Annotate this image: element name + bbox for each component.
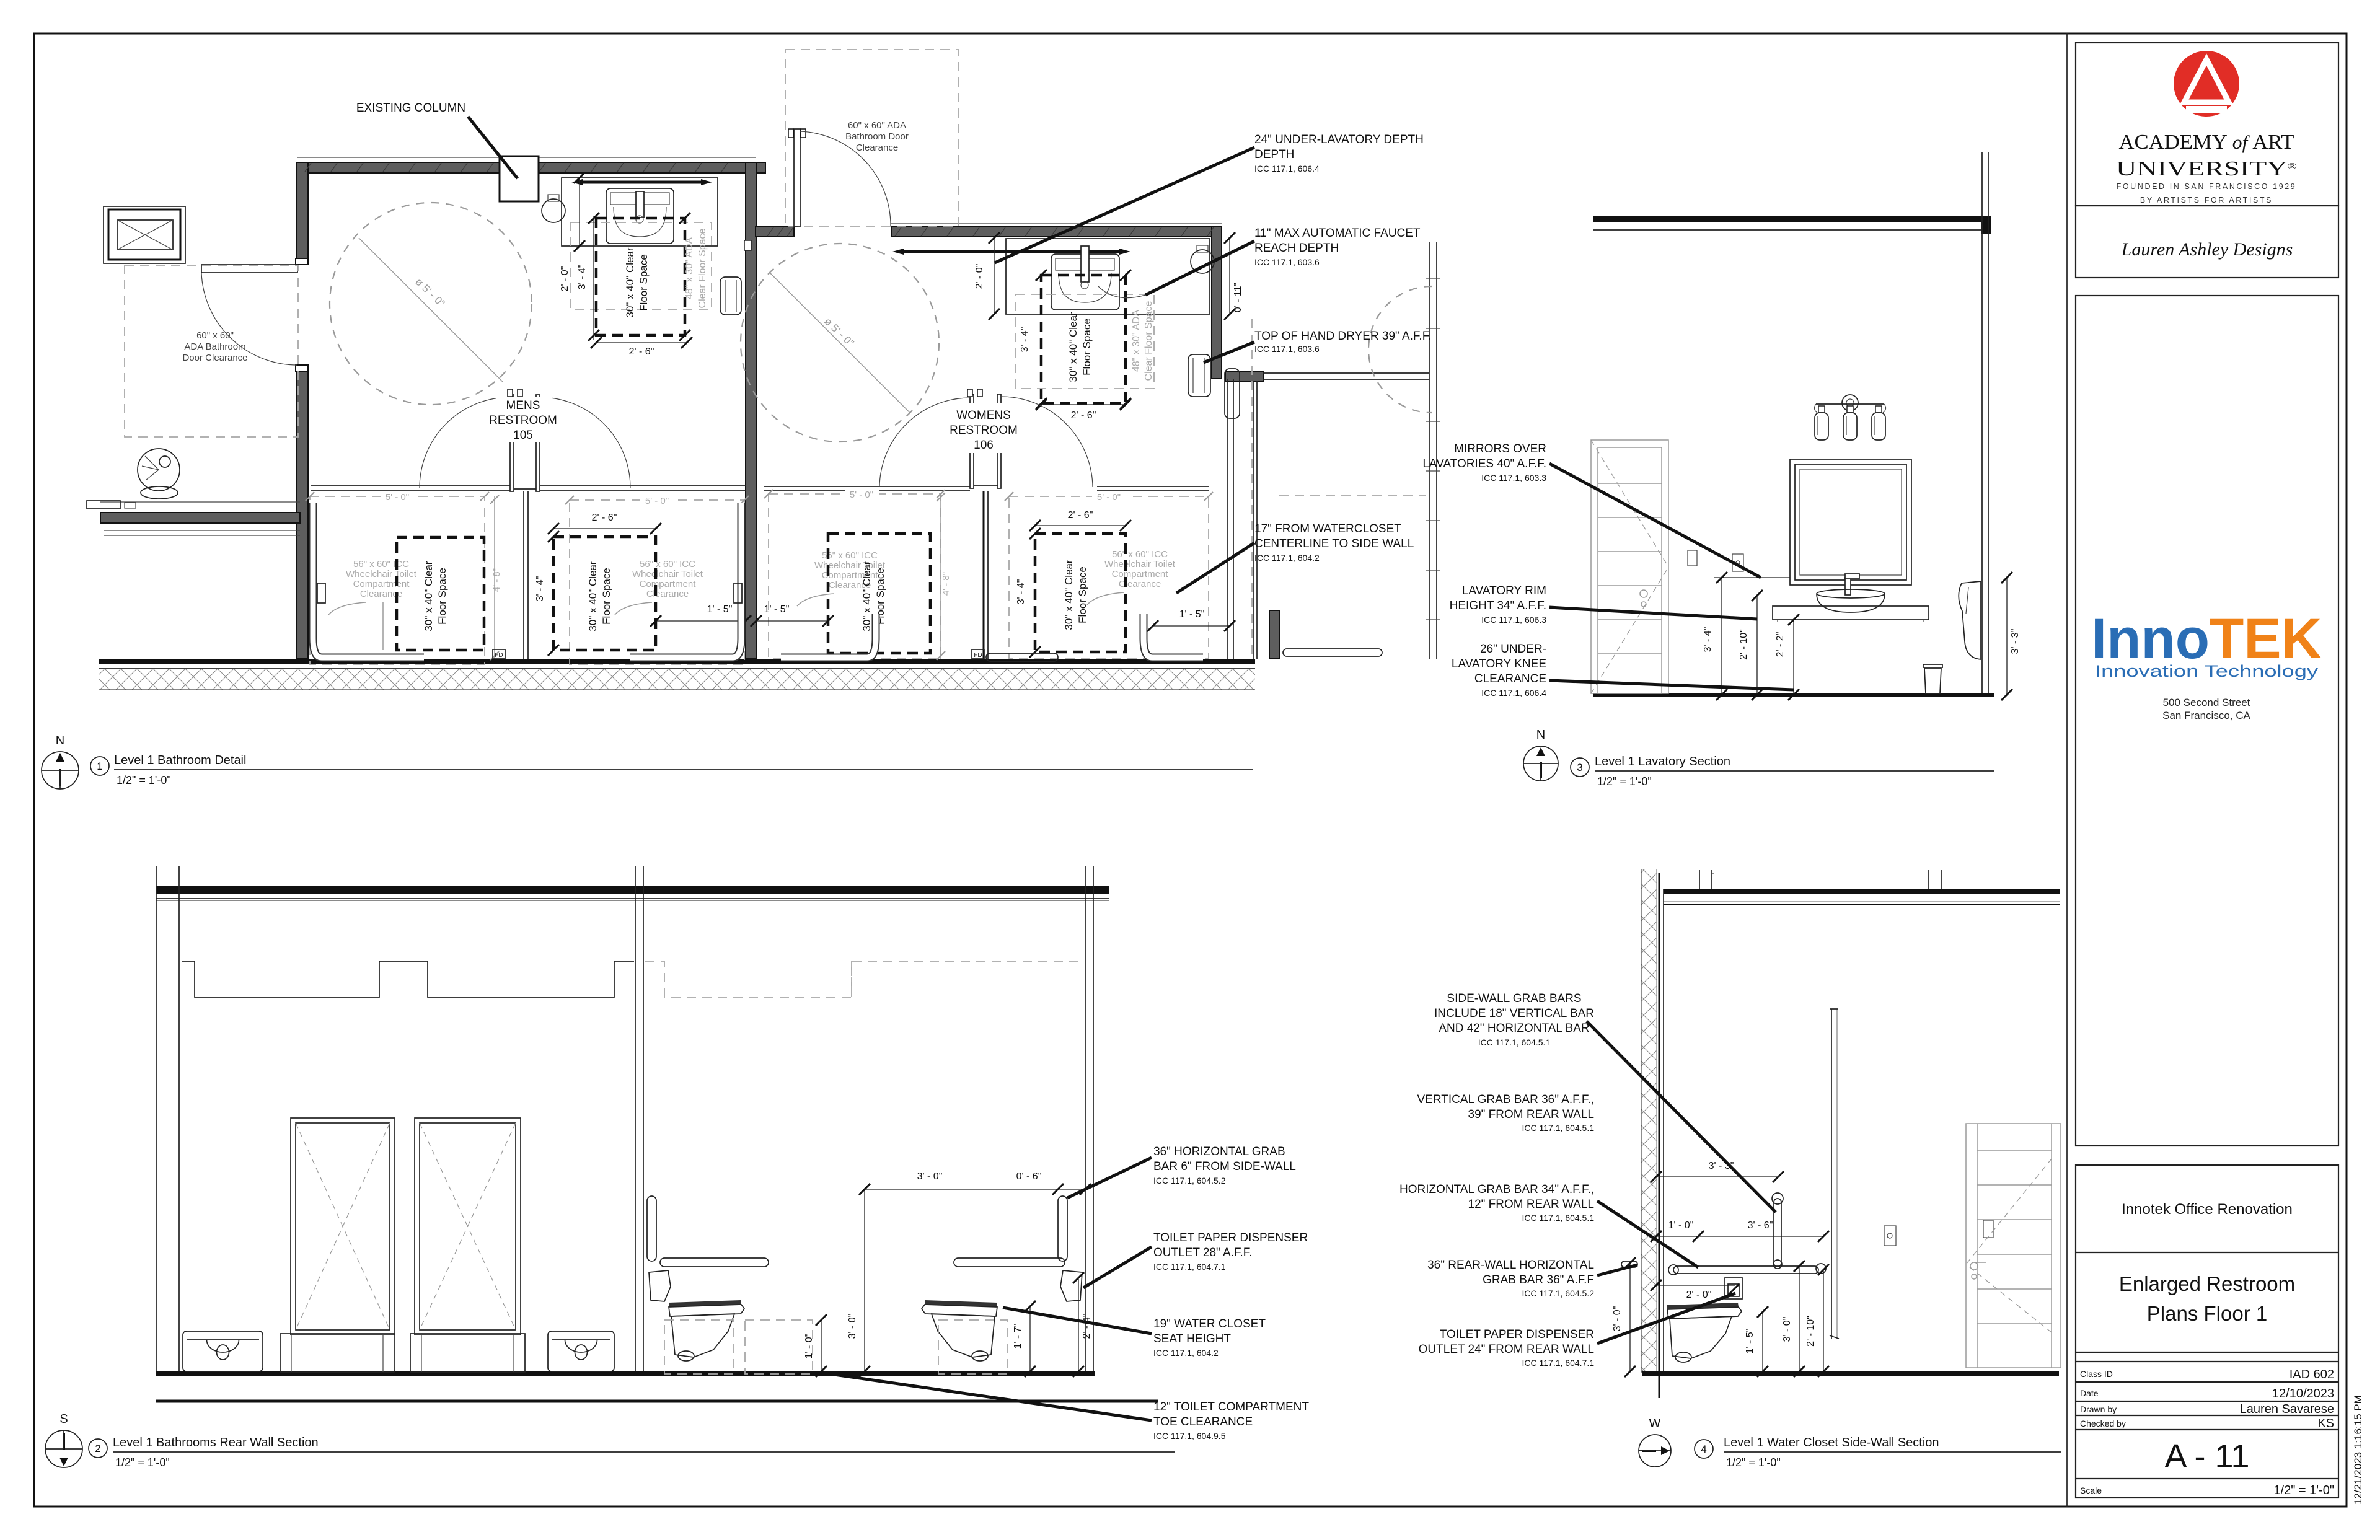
svg-text:BAR 6" FROM SIDE-WALL: BAR 6" FROM SIDE-WALL (1153, 1160, 1296, 1173)
svg-text:1' - 5": 1' - 5" (707, 604, 733, 615)
svg-text:OUTLET 24" FROM REAR WALL: OUTLET 24" FROM REAR WALL (1419, 1343, 1594, 1356)
svg-text:ICC 117.1, 604.5.1: ICC 117.1, 604.5.1 (1522, 1213, 1595, 1223)
svg-text:2' - 6": 2' - 6" (629, 346, 654, 357)
svg-text:2' - 0": 2' - 0" (974, 264, 985, 289)
svg-text:Level 1 Lavatory Section: Level 1 Lavatory Section (1595, 755, 1730, 768)
svg-text:Floor Space: Floor Space (436, 568, 448, 625)
svg-text:3' - 0": 3' - 0" (917, 1171, 943, 1182)
svg-text:Drawn by: Drawn by (2080, 1404, 2117, 1414)
svg-text:A - 11: A - 11 (2164, 1438, 2249, 1475)
svg-text:N: N (56, 734, 64, 747)
svg-text:REACH DEPTH: REACH DEPTH (1254, 242, 1339, 255)
svg-text:WOMENS: WOMENS (956, 409, 1011, 422)
svg-text:2: 2 (95, 1443, 100, 1454)
svg-text:Wheelchair Toilet: Wheelchair Toilet (1104, 559, 1176, 570)
svg-text:DEPTH: DEPTH (1254, 148, 1294, 161)
svg-text:SIDE-WALL GRAB BARS: SIDE-WALL GRAB BARS (1447, 992, 1581, 1005)
svg-text:3' - 4": 3' - 4" (1016, 579, 1026, 605)
svg-text:Plans Floor 1: Plans Floor 1 (2147, 1302, 2267, 1325)
svg-text:ICC 117.1, 604.2: ICC 117.1, 604.2 (1254, 553, 1320, 563)
svg-text:1: 1 (97, 760, 102, 772)
svg-text:3' - 0": 3' - 0" (1612, 1306, 1623, 1332)
svg-text:36" HORIZONTAL GRAB: 36" HORIZONTAL GRAB (1153, 1145, 1285, 1158)
svg-text:12/10/2023: 12/10/2023 (2272, 1387, 2334, 1401)
svg-text:5' - 0": 5' - 0" (1097, 492, 1121, 503)
svg-text:1/2" = 1'-0": 1/2" = 1'-0" (115, 1456, 170, 1469)
svg-text:Level 1 Water Closet Side-Wall: Level 1 Water Closet Side-Wall Section (1724, 1436, 1939, 1450)
svg-text:36" REAR-WALL HORIZONTAL: 36" REAR-WALL HORIZONTAL (1427, 1259, 1594, 1272)
svg-text:BY ARTISTS FOR ARTISTS: BY ARTISTS FOR ARTISTS (2140, 196, 2273, 205)
svg-text:1/2" = 1'-0": 1/2" = 1'-0" (2273, 1484, 2334, 1497)
svg-text:FD: FD (495, 652, 503, 659)
svg-text:3' - 6": 3' - 6" (1748, 1220, 1773, 1231)
svg-text:Clearance: Clearance (856, 143, 898, 153)
svg-text:Clearance: Clearance (646, 589, 689, 599)
svg-text:2' - 2": 2' - 2" (1775, 632, 1786, 658)
svg-text:Clear Floor Space: Clear Floor Space (697, 228, 708, 308)
svg-text:30" x 40" Clear: 30" x 40" Clear (1063, 560, 1075, 630)
svg-text:Compartment: Compartment (353, 579, 410, 589)
svg-text:12" FROM REAR WALL: 12" FROM REAR WALL (1468, 1198, 1594, 1211)
svg-text:ICC 117.1, 604.5.1: ICC 117.1, 604.5.1 (1522, 1123, 1595, 1133)
svg-text:RESTROOM: RESTROOM (950, 424, 1018, 437)
svg-text:1' - 0": 1' - 0" (1668, 1220, 1694, 1231)
svg-text:48" x 30" ADA: 48" x 30" ADA (1131, 310, 1142, 372)
svg-text:105: 105 (513, 429, 533, 442)
svg-text:LAVATORY KNEE: LAVATORY KNEE (1452, 658, 1546, 671)
svg-text:ICC 117.1, 604.7.1: ICC 117.1, 604.7.1 (1522, 1358, 1595, 1368)
svg-text:106: 106 (974, 439, 994, 452)
svg-text:3' - 3": 3' - 3" (2010, 629, 2021, 654)
svg-text:CENTERLINE TO SIDE WALL: CENTERLINE TO SIDE WALL (1254, 537, 1414, 550)
svg-text:56" x 60" ICC: 56" x 60" ICC (640, 559, 695, 570)
svg-text:Class ID: Class ID (2080, 1369, 2113, 1379)
svg-text:INCLUDE 18" VERTICAL BAR: INCLUDE 18" VERTICAL BAR (1434, 1007, 1594, 1020)
svg-text:3' - 4": 3' - 4" (577, 265, 588, 290)
svg-text:3' - 0": 3' - 0" (847, 1314, 858, 1339)
svg-text:ACADEMY of ART: ACADEMY of ART (2119, 131, 2294, 154)
svg-text:1/2" = 1'-0": 1/2" = 1'-0" (1726, 1456, 1781, 1469)
svg-text:ICC 117.1, 604.5.2: ICC 117.1, 604.5.2 (1153, 1176, 1226, 1186)
svg-text:Checked by: Checked by (2080, 1419, 2126, 1428)
svg-text:4: 4 (1701, 1443, 1706, 1455)
svg-text:RESTROOM: RESTROOM (489, 414, 557, 427)
svg-text:12" TOILET COMPARTMENT: 12" TOILET COMPARTMENT (1153, 1401, 1309, 1414)
svg-text:HEIGHT 34" A.F.F.: HEIGHT 34" A.F.F. (1450, 599, 1546, 612)
svg-text:Level 1 Bathrooms Rear Wall Se: Level 1 Bathrooms Rear Wall Section (113, 1436, 319, 1450)
svg-text:1/2" = 1'-0": 1/2" = 1'-0" (1597, 775, 1652, 788)
svg-text:ADA Bathroom: ADA Bathroom (184, 341, 245, 352)
svg-text:3' - 4": 3' - 4" (535, 576, 545, 602)
svg-text:11" MAX AUTOMATIC FAUCET: 11" MAX AUTOMATIC FAUCET (1254, 227, 1421, 240)
svg-text:OUTLET 28" A.F.F.: OUTLET 28" A.F.F. (1153, 1246, 1253, 1259)
svg-text:Floor Space: Floor Space (601, 568, 612, 625)
svg-text:ICC 117.1, 603.6: ICC 117.1, 603.6 (1254, 344, 1320, 354)
svg-text:Compartment: Compartment (640, 579, 697, 589)
svg-text:HORIZONTAL GRAB BAR 34" A.F.F.: HORIZONTAL GRAB BAR 34" A.F.F., (1399, 1183, 1594, 1196)
svg-text:3: 3 (1577, 762, 1582, 773)
svg-text:ICC 117.1, 606.4: ICC 117.1, 606.4 (1481, 688, 1546, 698)
svg-text:GRAB BAR 36" A.F.F: GRAB BAR 36" A.F.F (1483, 1274, 1594, 1287)
svg-text:4' - 8": 4' - 8" (491, 568, 502, 592)
svg-text:InnoTEK: InnoTEK (2091, 607, 2322, 671)
svg-text:ICC 117.1, 604.5.1: ICC 117.1, 604.5.1 (1478, 1037, 1551, 1047)
svg-text:30" x 40" Clear: 30" x 40" Clear (1067, 312, 1079, 382)
svg-text:TOILET PAPER DISPENSER: TOILET PAPER DISPENSER (1440, 1328, 1594, 1341)
svg-text:ICC 117.1, 604.5.2: ICC 117.1, 604.5.2 (1522, 1288, 1595, 1298)
svg-text:2' - 6": 2' - 6" (592, 513, 617, 523)
svg-text:LAVATORIES 40" A.F.F.: LAVATORIES 40" A.F.F. (1422, 457, 1546, 470)
svg-text:ICC 117.1, 604.7.1: ICC 117.1, 604.7.1 (1153, 1262, 1226, 1272)
svg-text:56" x 60" ICC: 56" x 60" ICC (822, 550, 878, 561)
svg-text:1' - 5": 1' - 5" (1179, 609, 1205, 620)
svg-text:VERTICAL GRAB BAR 36" A.F.F.,: VERTICAL GRAB BAR 36" A.F.F., (1417, 1093, 1594, 1106)
svg-text:FOUNDED IN SAN FRANCISCO 1929: FOUNDED IN SAN FRANCISCO 1929 (2117, 182, 2297, 191)
svg-text:5' - 0": 5' - 0" (645, 496, 669, 506)
svg-text:30" x 40" Clear: 30" x 40" Clear (423, 561, 434, 631)
svg-text:Floor Space: Floor Space (1077, 566, 1088, 623)
svg-text:ICC 117.1, 603.3: ICC 117.1, 603.3 (1481, 473, 1546, 483)
svg-text:S: S (59, 1412, 68, 1426)
svg-text:1/2" = 1'-0": 1/2" = 1'-0" (117, 774, 171, 786)
svg-text:1' - 0": 1' - 0" (804, 1334, 814, 1359)
svg-text:N: N (1536, 728, 1545, 742)
svg-text:1' - 5": 1' - 5" (1745, 1329, 1755, 1354)
svg-text:30" x 40" Clear: 30" x 40" Clear (624, 247, 636, 318)
svg-text:56" x 60" ICC: 56" x 60" ICC (1112, 549, 1168, 560)
svg-text:1' - 7": 1' - 7" (1013, 1324, 1023, 1349)
svg-text:2' - 6": 2' - 6" (1071, 410, 1096, 421)
svg-text:56" x 60" ICC: 56" x 60" ICC (353, 559, 409, 570)
svg-text:Floor Space: Floor Space (1081, 319, 1093, 376)
svg-text:Date: Date (2080, 1388, 2099, 1398)
svg-text:30" x 40" Clear: 30" x 40" Clear (861, 561, 873, 631)
svg-text:17" FROM WATERCLOSET: 17" FROM WATERCLOSET (1254, 522, 1401, 535)
svg-text:30" x 40" Clear: 30" x 40" Clear (587, 561, 599, 631)
svg-text:Lauren Savarese: Lauren Savarese (2240, 1402, 2334, 1416)
svg-text:2' - 6": 2' - 6" (1068, 510, 1093, 521)
svg-text:TOE CLEARANCE: TOE CLEARANCE (1153, 1415, 1253, 1428)
svg-text:Wheelchair Toilet: Wheelchair Toilet (346, 569, 417, 579)
svg-text:12/21/2023 1:16:15 PM: 12/21/2023 1:16:15 PM (2352, 1395, 2364, 1505)
svg-text:EXISTING COLUMN: EXISTING COLUMN (356, 102, 465, 115)
svg-text:2' - 4": 2' - 4" (1082, 1314, 1092, 1339)
svg-text:Enlarged Restroom: Enlarged Restroom (2119, 1272, 2295, 1295)
svg-text:60" x 60": 60" x 60" (196, 330, 234, 341)
svg-text:SEAT HEIGHT: SEAT HEIGHT (1153, 1332, 1231, 1345)
svg-text:W: W (1649, 1417, 1661, 1430)
svg-text:AND 42" HORIZONTAL BAR: AND 42" HORIZONTAL BAR (1439, 1022, 1589, 1035)
svg-text:TOP OF HAND DRYER 39" A.F.F.: TOP OF HAND DRYER 39" A.F.F. (1254, 330, 1432, 343)
svg-text:Innovation Technology: Innovation Technology (2095, 662, 2319, 680)
svg-text:39" FROM REAR WALL: 39" FROM REAR WALL (1468, 1108, 1594, 1121)
svg-text:MIRRORS OVER: MIRRORS OVER (1454, 442, 1546, 455)
svg-text:48" x 30" ADA: 48" x 30" ADA (684, 237, 695, 300)
svg-text:3' - 0": 3' - 0" (1782, 1317, 1792, 1342)
svg-text:Lauren Ashley Designs: Lauren Ashley Designs (2121, 239, 2293, 260)
svg-text:3' - 4": 3' - 4" (1703, 627, 1713, 653)
svg-text:19" WATER CLOSET: 19" WATER CLOSET (1153, 1318, 1266, 1331)
svg-text:0' - 11": 0' - 11" (1233, 283, 1243, 312)
svg-text:San Francisco, CA: San Francisco, CA (2162, 710, 2250, 721)
svg-text:ICC 117.1, 606.4: ICC 117.1, 606.4 (1254, 164, 1320, 174)
svg-text:60" x 60" ADA: 60" x 60" ADA (848, 120, 906, 131)
svg-text:2' - 10": 2' - 10" (1805, 1316, 1816, 1347)
svg-text:500 Second Street: 500 Second Street (2163, 697, 2250, 708)
svg-text:24" UNDER-LAVATORY DEPTH: 24" UNDER-LAVATORY DEPTH (1254, 133, 1424, 146)
svg-text:FD: FD (974, 652, 982, 659)
svg-text:Innotek Office Renovation: Innotek Office Renovation (2122, 1201, 2293, 1218)
svg-text:2' - 10": 2' - 10" (1739, 629, 1749, 660)
svg-text:3' - 4": 3' - 4" (1020, 327, 1030, 353)
svg-text:Bathroom Door: Bathroom Door (845, 131, 909, 142)
svg-text:Clear Floor Space: Clear Floor Space (1144, 301, 1154, 381)
svg-text:Door Clearance: Door Clearance (182, 353, 247, 363)
svg-text:ICC 117.1, 606.3: ICC 117.1, 606.3 (1481, 615, 1546, 625)
svg-text:Level 1 Bathroom Detail: Level 1 Bathroom Detail (114, 754, 246, 767)
svg-text:ICC 117.1, 603.6: ICC 117.1, 603.6 (1254, 257, 1320, 267)
svg-text:5' - 0": 5' - 0" (850, 490, 873, 500)
svg-text:UNIVERSITY®: UNIVERSITY® (2116, 157, 2297, 180)
svg-text:MENS: MENS (506, 399, 540, 412)
svg-text:0' - 6": 0' - 6" (1016, 1171, 1042, 1182)
svg-text:Scale: Scale (2080, 1485, 2102, 1495)
svg-text:IAD 602: IAD 602 (2290, 1368, 2334, 1381)
svg-text:2' - 0": 2' - 0" (560, 266, 570, 292)
svg-text:ICC 117.1, 604.9.5: ICC 117.1, 604.9.5 (1153, 1431, 1226, 1441)
svg-text:26" UNDER-: 26" UNDER- (1480, 643, 1546, 656)
svg-text:4' - 8": 4' - 8" (941, 572, 951, 596)
svg-text:Compartment: Compartment (1112, 569, 1169, 579)
svg-text:Wheelchair Toilet: Wheelchair Toilet (632, 569, 703, 579)
svg-text:2' - 0": 2' - 0" (1686, 1290, 1712, 1300)
svg-text:CLEARANCE: CLEARANCE (1474, 672, 1546, 685)
svg-text:1' - 5": 1' - 5" (764, 604, 790, 615)
svg-text:TOILET PAPER DISPENSER: TOILET PAPER DISPENSER (1153, 1231, 1308, 1244)
svg-text:KS: KS (2317, 1417, 2334, 1430)
svg-text:Floor Space: Floor Space (638, 254, 650, 311)
svg-text:5' - 0": 5' - 0" (386, 492, 409, 503)
svg-text:ICC 117.1, 604.2: ICC 117.1, 604.2 (1153, 1348, 1219, 1358)
svg-text:LAVATORY RIM: LAVATORY RIM (1462, 584, 1546, 597)
